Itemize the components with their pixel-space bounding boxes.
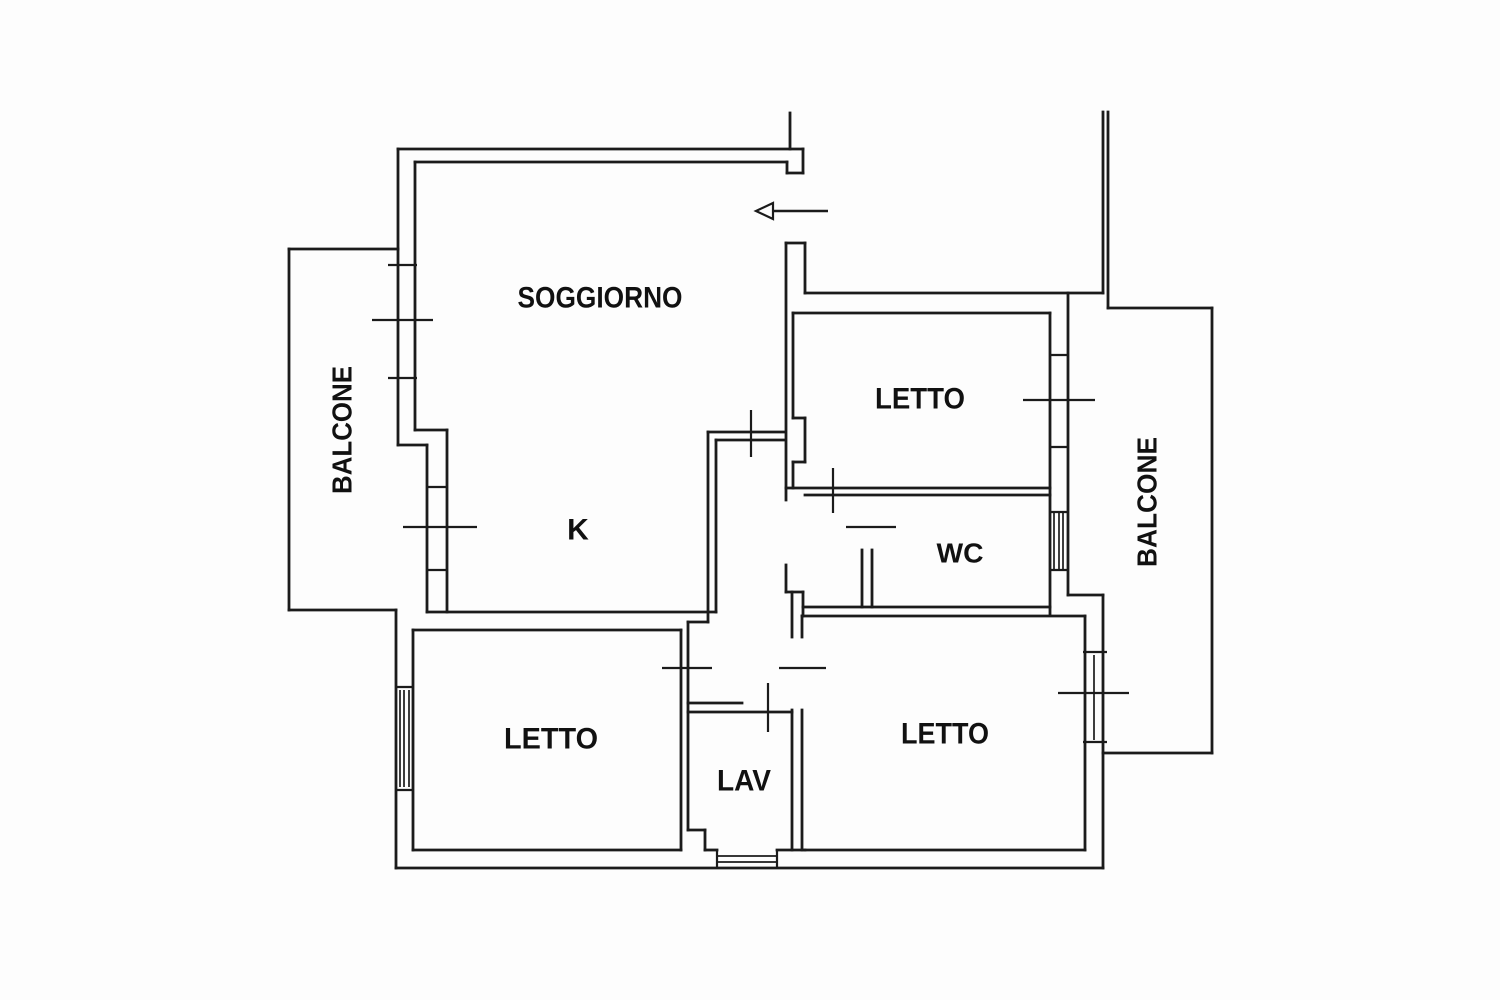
room-label-balcone-est: BALCONE [1132,437,1163,567]
entrance-arrow-icon [756,203,773,219]
room-label-kitchen: K [567,514,589,547]
floor-plan-sheet: SOGGIORNOKLETTOWCLETTOLAVLETTOBALCONEBAL… [0,0,1500,1000]
room-label-wc: WC [937,538,984,569]
room-label-lav: LAV [717,765,771,798]
room-label-letto-est: LETTO [901,718,989,751]
room-label-letto-ovest: LETTO [504,723,598,756]
room-label-letto-nord: LETTO [875,383,965,416]
floor-plan-canvas: SOGGIORNOKLETTOWCLETTOLAVLETTOBALCONEBAL… [0,0,1500,1000]
room-label-soggiorno: SOGGIORNO [518,282,683,315]
room-label-balcone-ovest: BALCONE [327,366,358,494]
